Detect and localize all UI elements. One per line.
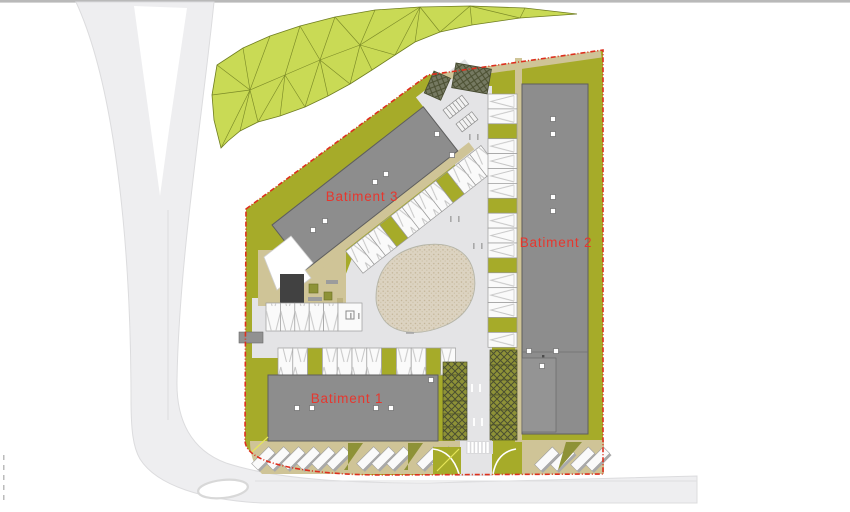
label-batiment-1: Batiment 1: [311, 391, 384, 406]
site-entrance-bar: [239, 332, 263, 343]
label-batiment-2: Batiment 2: [520, 235, 593, 250]
site-plan-drawing: Batiment 3 Batiment 2 Batiment 1: [0, 0, 850, 512]
site-plan-page: Batiment 3 Batiment 2 Batiment 1: [0, 0, 850, 512]
parking-row-central: [278, 348, 456, 375]
shelter-building: [280, 274, 304, 304]
parking-row-west: [266, 303, 362, 331]
building-batiment-1: [268, 375, 438, 441]
parking-column-batiment2: [488, 94, 517, 347]
label-batiment-3: Batiment 3: [326, 189, 399, 204]
